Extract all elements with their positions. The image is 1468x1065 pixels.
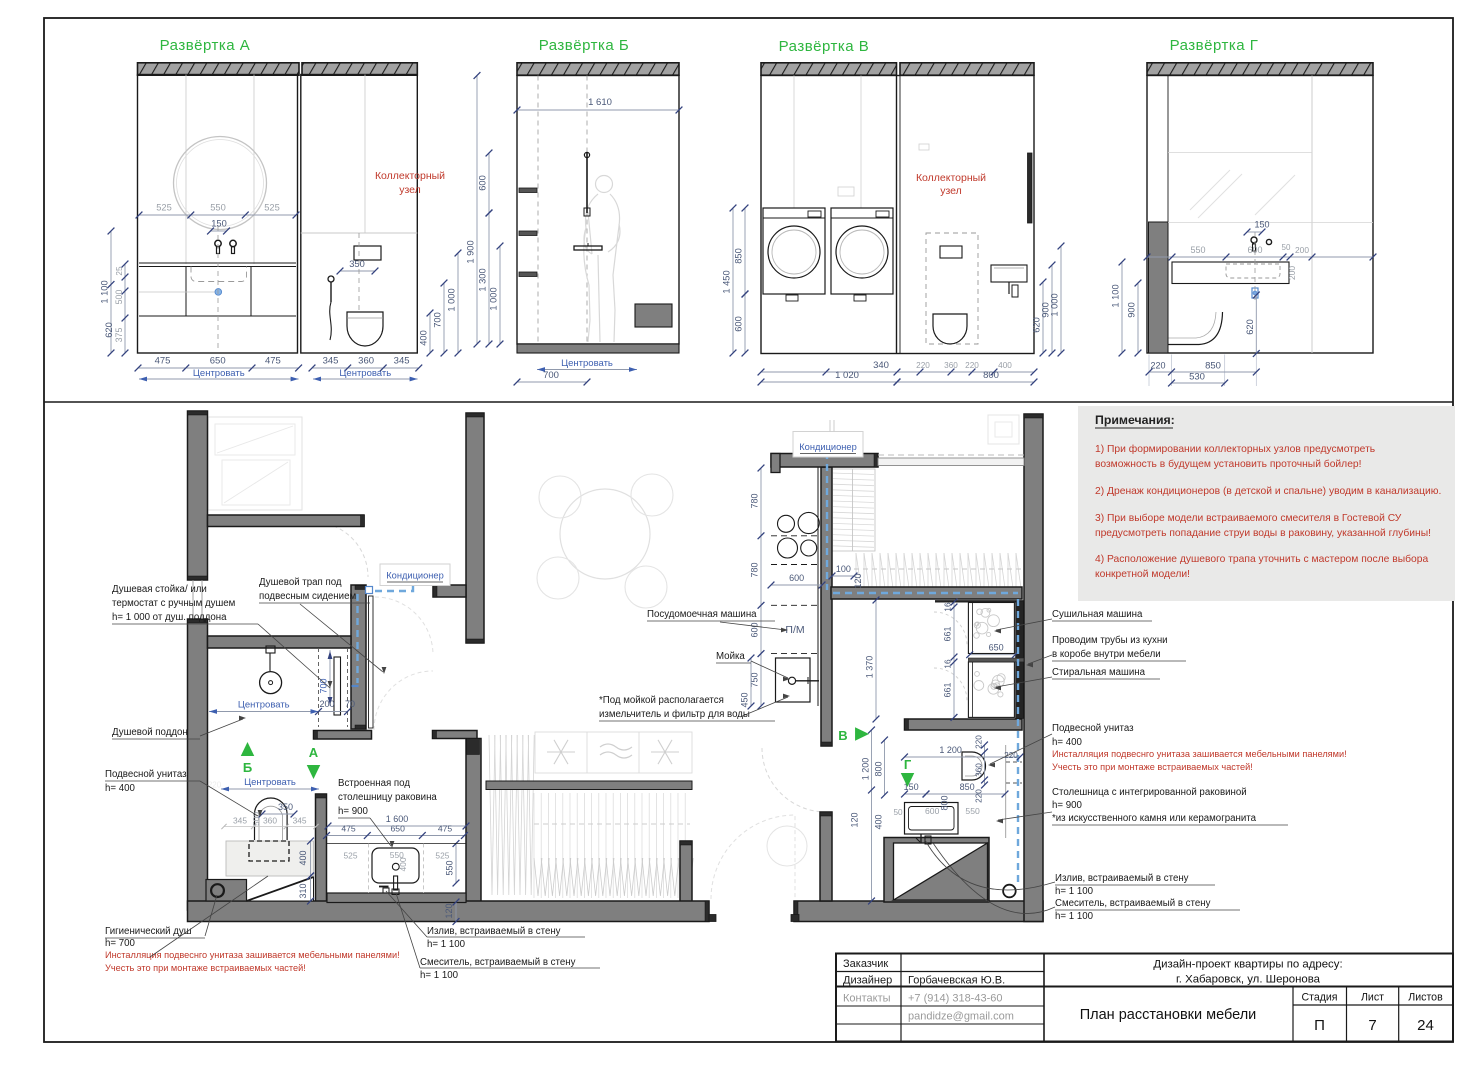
svg-text:Встроенная под: Встроенная под (338, 778, 410, 789)
svg-text:1 900: 1 900 (466, 240, 476, 263)
svg-text:Душевой трап под: Душевой трап под (259, 577, 342, 588)
svg-text:Центровать: Центровать (238, 700, 290, 711)
svg-text:850: 850 (1205, 361, 1221, 372)
svg-text:узел: узел (940, 185, 962, 197)
svg-text:220: 220 (916, 361, 930, 370)
svg-text:2) Дренаж кондиционеров (в дет: 2) Дренаж кондиционеров (в детской и спа… (1095, 486, 1441, 497)
svg-text:600: 600 (925, 806, 940, 816)
svg-text:Развёртка В: Развёртка В (779, 38, 870, 55)
svg-text:340: 340 (873, 360, 889, 371)
svg-text:475: 475 (265, 356, 281, 367)
svg-text:550: 550 (965, 806, 980, 816)
svg-text:Развёртка Б: Развёртка Б (539, 37, 630, 54)
svg-text:800: 800 (874, 761, 884, 776)
svg-text:г. Хабаровск, ул. Шеронова: г. Хабаровск, ул. Шеронова (1176, 974, 1321, 986)
svg-text:360: 360 (358, 356, 374, 367)
svg-text:600: 600 (478, 175, 488, 191)
svg-text:700: 700 (319, 678, 329, 693)
svg-text:pandidze@gmail.com: pandidze@gmail.com (908, 1011, 1014, 1023)
svg-text:650: 650 (989, 643, 1004, 653)
svg-text:Дизайн-проект квартиры по адре: Дизайн-проект квартиры по адресу: (1153, 959, 1342, 971)
svg-text:150: 150 (1254, 220, 1269, 230)
svg-text:h= 900: h= 900 (1052, 800, 1083, 811)
svg-text:850: 850 (960, 782, 975, 792)
svg-text:Инсталляция подвеснго унитаза: Инсталляция подвеснго унитаза зашивается… (105, 950, 400, 960)
svg-text:345: 345 (394, 356, 410, 367)
svg-text:475: 475 (438, 824, 453, 834)
svg-text:Смеситель, встраиваемый в стен: Смеситель, встраиваемый в стену (420, 957, 576, 968)
svg-text:400: 400 (298, 850, 308, 865)
svg-text:Горбачевская Ю.В.: Горбачевская Ю.В. (908, 975, 1005, 987)
svg-text:План расстановки мебели: План расстановки мебели (1080, 1007, 1257, 1023)
svg-text:525: 525 (264, 203, 280, 213)
svg-text:350: 350 (278, 802, 293, 812)
svg-text:220: 220 (975, 789, 984, 803)
svg-text:600: 600 (789, 573, 804, 583)
svg-text:525: 525 (344, 850, 358, 860)
svg-text:Центровать: Центровать (339, 368, 391, 379)
svg-text:500: 500 (114, 290, 124, 305)
svg-text:возможность в будущем установи: возможность в будущем установить проточн… (1095, 458, 1362, 470)
svg-text:50: 50 (1282, 243, 1291, 252)
svg-text:620: 620 (1245, 319, 1255, 335)
svg-text:525: 525 (435, 850, 449, 860)
svg-text:661: 661 (943, 682, 953, 697)
svg-text:Стадия: Стадия (1301, 992, 1337, 1004)
svg-text:Примечания:: Примечания: (1095, 413, 1175, 427)
svg-text:Подвесной унитаз: Подвесной унитаз (105, 769, 187, 780)
svg-text:h= 1 000 от душ. поддона: h= 1 000 от душ. поддона (112, 612, 227, 623)
svg-text:1) При формировании коллекторн: 1) При формировании коллекторных узлов п… (1095, 443, 1375, 455)
svg-text:h= 900: h= 900 (338, 806, 369, 817)
svg-text:200: 200 (319, 699, 334, 709)
svg-text:220: 220 (1150, 361, 1165, 371)
svg-text:1 100: 1 100 (100, 280, 110, 303)
svg-text:800: 800 (940, 795, 950, 810)
svg-text:350: 350 (349, 259, 365, 269)
svg-text:Подвесной унитаз: Подвесной унитаз (1052, 723, 1134, 734)
svg-text:310: 310 (298, 883, 308, 898)
svg-text:h= 400: h= 400 (1052, 737, 1083, 748)
svg-text:Центровать: Центровать (561, 358, 613, 369)
svg-text:1 000: 1 000 (1050, 293, 1060, 316)
svg-text:150: 150 (211, 219, 227, 229)
svg-text:Излив, встраиваемый в стену: Излив, встраиваемый в стену (427, 926, 561, 937)
svg-text:620: 620 (104, 322, 114, 338)
svg-text:+7 (914) 318-43-60: +7 (914) 318-43-60 (908, 993, 1002, 1005)
svg-text:Заказчик: Заказчик (843, 958, 888, 970)
svg-text:Кондиционер: Кондиционер (799, 442, 857, 452)
svg-text:200: 200 (1295, 245, 1309, 255)
svg-text:Кондиционер: Кондиционер (386, 571, 444, 581)
svg-text:345: 345 (323, 356, 339, 367)
svg-text:столешницу раковина: столешницу раковина (338, 792, 437, 803)
svg-text:1 020: 1 020 (835, 370, 859, 381)
svg-text:16: 16 (944, 602, 953, 612)
svg-text:70: 70 (345, 699, 355, 709)
svg-text:1 000: 1 000 (447, 288, 457, 311)
svg-text:850: 850 (734, 248, 744, 264)
svg-text:650: 650 (391, 824, 406, 834)
svg-text:подвесным сидением: подвесным сидением (259, 591, 356, 602)
svg-text:1 000: 1 000 (489, 287, 499, 310)
svg-text:400: 400 (419, 330, 429, 346)
svg-text:900: 900 (1127, 302, 1137, 318)
svg-text:7: 7 (1368, 1017, 1376, 1034)
svg-text:360: 360 (263, 816, 277, 826)
svg-text:550: 550 (210, 203, 226, 213)
svg-text:П/М: П/М (785, 624, 804, 636)
svg-text:120: 120 (444, 903, 454, 918)
svg-text:Коллекторный: Коллекторный (916, 172, 986, 184)
svg-text:Стиральная машина: Стиральная машина (1052, 667, 1146, 678)
svg-text:661: 661 (943, 626, 953, 641)
svg-text:h= 1 100: h= 1 100 (420, 970, 459, 981)
svg-text:220: 220 (208, 781, 222, 790)
svg-text:Б: Б (243, 760, 252, 775)
svg-text:1 610: 1 610 (588, 97, 612, 108)
svg-text:1 450: 1 450 (722, 270, 732, 293)
svg-text:h= 1 100: h= 1 100 (1055, 911, 1094, 922)
svg-text:*Под мойкой располагается: *Под мойкой располагается (599, 695, 724, 706)
svg-text:1 200: 1 200 (939, 745, 962, 755)
svg-text:Проводим трубы из кухни: Проводим трубы из кухни (1052, 635, 1168, 646)
svg-text:*из искусственного камня или к: *из искусственного камня или керамограни… (1052, 813, 1257, 824)
svg-text:375: 375 (114, 328, 124, 343)
svg-text:h= 700: h= 700 (105, 938, 136, 949)
svg-text:450: 450 (740, 692, 750, 707)
svg-text:Душевая стойка/ или: Душевая стойка/ или (112, 584, 207, 595)
svg-text:780: 780 (750, 562, 760, 577)
svg-text:700: 700 (543, 370, 559, 381)
svg-text:Гигиенический душ: Гигиенический душ (105, 926, 192, 937)
svg-text:Центровать: Центровать (244, 777, 296, 788)
svg-text:550: 550 (1190, 245, 1205, 255)
svg-text:120: 120 (853, 573, 863, 588)
svg-text:h= 400: h= 400 (105, 783, 136, 794)
svg-text:П: П (1314, 1017, 1325, 1034)
svg-text:24: 24 (1417, 1017, 1434, 1034)
svg-text:650: 650 (210, 356, 226, 367)
svg-text:Дизайнер: Дизайнер (843, 975, 892, 987)
svg-text:4) Расположение душевого трапа: 4) Расположение душевого трапа уточнить … (1095, 553, 1428, 565)
svg-text:345: 345 (293, 816, 307, 826)
svg-text:Коллекторный: Коллекторный (375, 170, 445, 182)
svg-text:в коробе внутри мебели: в коробе внутри мебели (1052, 649, 1161, 660)
svg-text:120: 120 (850, 812, 860, 827)
svg-text:Листов: Листов (1408, 992, 1443, 1004)
svg-text:360: 360 (944, 361, 958, 370)
svg-text:1 100: 1 100 (1111, 284, 1121, 307)
svg-text:А: А (309, 745, 319, 760)
svg-text:100: 100 (836, 564, 851, 574)
svg-text:1 300: 1 300 (478, 268, 488, 291)
svg-text:Душевой поддон: Душевой поддон (112, 727, 188, 738)
svg-text:360: 360 (975, 763, 984, 777)
svg-text:В: В (838, 728, 847, 743)
svg-text:Посудомоечная машина: Посудомоечная машина (647, 609, 757, 620)
svg-text:16: 16 (944, 659, 953, 669)
svg-text:Развёртка Г: Развёртка Г (1170, 37, 1259, 54)
svg-text:Инсталляция подвеснго унитаза: Инсталляция подвеснго унитаза зашивается… (1052, 749, 1347, 759)
svg-text:345: 345 (233, 816, 247, 826)
svg-text:620: 620 (1032, 317, 1042, 333)
svg-text:термостат с ручным душем: термостат с ручным душем (112, 598, 235, 609)
svg-text:780: 780 (750, 493, 760, 508)
svg-text:предусмотреть попадание струи: предусмотреть попадание струи воды в рак… (1095, 527, 1431, 539)
svg-text:Учесть это при монтаже встраив: Учесть это при монтаже встраиваемых част… (105, 963, 306, 973)
svg-text:1 370: 1 370 (865, 656, 875, 679)
svg-text:550: 550 (445, 860, 455, 875)
svg-text:h= 1 100: h= 1 100 (427, 939, 466, 950)
svg-text:Мойка: Мойка (716, 651, 745, 662)
svg-text:600: 600 (734, 316, 744, 332)
svg-text:1 600: 1 600 (386, 814, 409, 824)
svg-text:Смеситель, встраиваемый в стен: Смеситель, встраиваемый в стену (1055, 898, 1211, 909)
svg-text:3) При выборе модели встраива: 3) При выборе модели встраиваемого смеси… (1095, 512, 1402, 524)
svg-text:Центровать: Центровать (193, 368, 245, 379)
svg-text:400: 400 (998, 361, 1012, 370)
svg-text:525: 525 (156, 203, 172, 213)
svg-text:h= 1 100: h= 1 100 (1055, 886, 1094, 897)
svg-text:Развёртка А: Развёртка А (160, 37, 251, 54)
svg-text:25: 25 (115, 266, 124, 276)
svg-text:измельчитель и фильтр для воды: измельчитель и фильтр для воды (599, 709, 750, 720)
svg-text:220: 220 (1004, 751, 1018, 760)
svg-text:конкретной модели!: конкретной модели! (1095, 569, 1190, 580)
svg-text:Контакты: Контакты (843, 993, 891, 1005)
svg-text:50: 50 (893, 808, 903, 817)
svg-text:200: 200 (1287, 266, 1297, 280)
svg-text:700: 700 (433, 312, 443, 328)
svg-text:530: 530 (1189, 372, 1205, 383)
svg-text:475: 475 (341, 824, 356, 834)
svg-text:220: 220 (965, 361, 979, 370)
svg-text:Учесть это при монтаже встраив: Учесть это при монтаже встраиваемых част… (1052, 762, 1253, 772)
svg-text:800: 800 (983, 370, 999, 381)
svg-text:600: 600 (1247, 245, 1262, 255)
svg-text:Сушильная машина: Сушильная машина (1052, 609, 1143, 620)
svg-text:400: 400 (874, 814, 884, 829)
svg-text:Лист: Лист (1361, 992, 1384, 1004)
svg-text:Излив, встраиваемый в стену: Излив, встраиваемый в стену (1055, 873, 1189, 884)
svg-text:400: 400 (398, 857, 408, 871)
svg-text:475: 475 (155, 356, 171, 367)
svg-text:1 200: 1 200 (861, 758, 871, 781)
svg-text:Г: Г (904, 757, 912, 772)
svg-text:узел: узел (399, 184, 421, 196)
svg-text:Столешница с интегрированной р: Столешница с интегрированной раковиной (1052, 787, 1247, 798)
svg-text:600: 600 (750, 622, 760, 637)
